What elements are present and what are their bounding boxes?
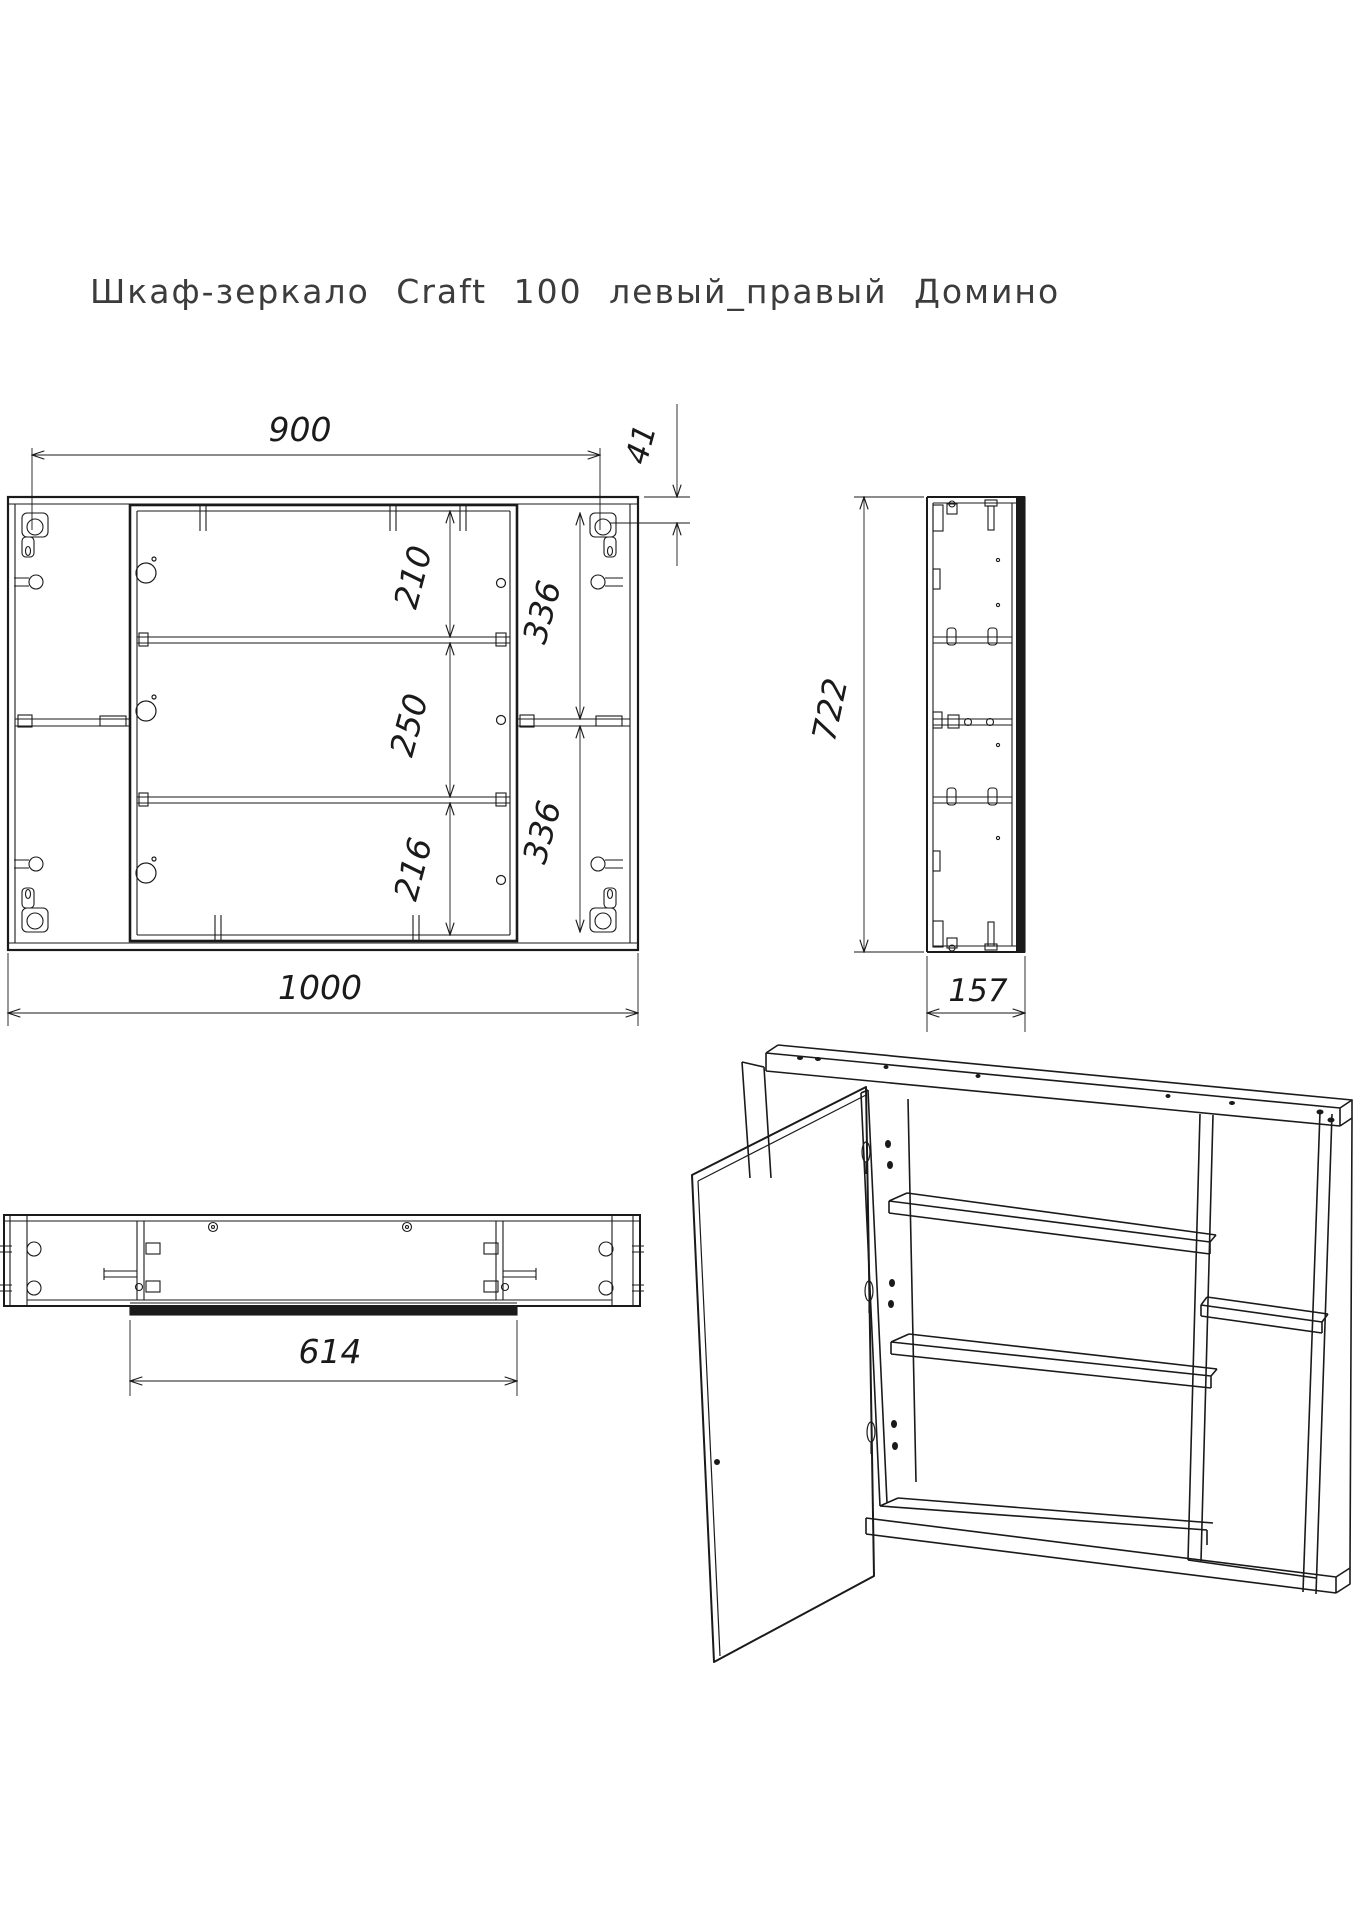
- dim-900: [32, 448, 600, 530]
- dim-label-336-upper: 336: [515, 577, 569, 648]
- front-shelves: [137, 637, 510, 803]
- dim-label-900: 900: [269, 410, 332, 449]
- front-carcass-outline: [8, 497, 638, 950]
- bottom-hardware-icons: [0, 1223, 644, 1296]
- dim-label-216: 216: [386, 834, 440, 905]
- isometric-view: [692, 1045, 1352, 1662]
- dim-label-157: 157: [948, 973, 1007, 1009]
- side-door-slab: [1017, 497, 1025, 952]
- bottom-door-edge: [130, 1306, 517, 1315]
- technical-drawing: 900 41 210 250 216 336 336 1000: [0, 0, 1358, 1920]
- iso-shelves: [889, 1193, 1217, 1388]
- dim-label-250: 250: [382, 690, 436, 761]
- iso-left-wall: [742, 1062, 771, 1178]
- front-view: 900 41 210 250 216 336 336 1000: [8, 404, 690, 1026]
- side-view: 722 157: [804, 497, 1025, 1032]
- drawing-sheet: Шкаф-зеркало Craft 100 левый_правый Доми…: [0, 0, 1358, 1920]
- bottom-view: 614: [0, 1215, 644, 1396]
- dim-label-1000: 1000: [278, 968, 362, 1007]
- front-mirror-door: [130, 505, 517, 941]
- iso-bottom: [866, 1498, 1350, 1593]
- dim-label-614: 614: [299, 1332, 362, 1371]
- bottom-carcass-outline: [4, 1215, 640, 1306]
- dim-722: [854, 497, 924, 952]
- mount-bracket-icons: [22, 513, 616, 932]
- iso-right-column: [1188, 1112, 1352, 1594]
- dim-label-41: 41: [619, 421, 664, 468]
- dim-label-210: 210: [386, 542, 440, 613]
- dim-label-336-lower: 336: [515, 797, 569, 868]
- iso-open-door: [692, 1087, 874, 1662]
- iso-top-board: [766, 1045, 1352, 1126]
- dim-label-722: 722: [804, 675, 855, 745]
